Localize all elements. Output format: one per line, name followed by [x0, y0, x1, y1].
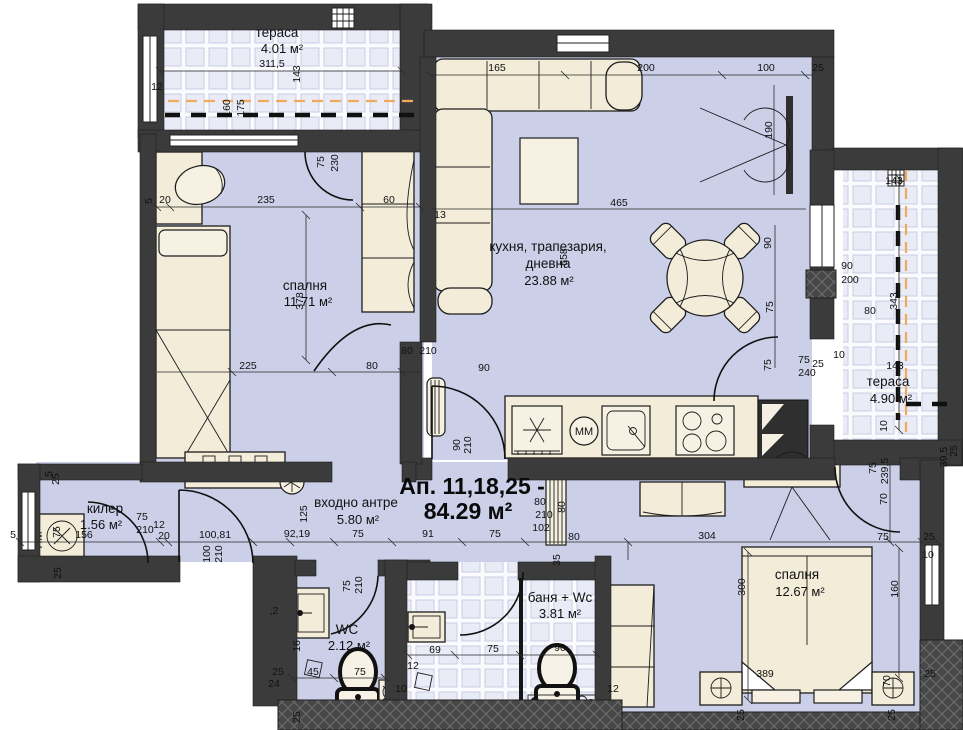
microwave-icon: MM: [570, 417, 598, 445]
dimension-label: 45: [307, 666, 319, 678]
bedroom1-terrace-window: [170, 135, 298, 146]
dimension-label: 210: [213, 545, 225, 563]
dimension-label: 210: [535, 509, 553, 521]
dimension-label: 210: [353, 576, 365, 594]
dimension-label: 25: [886, 709, 898, 721]
kitchen-counter: MM: [505, 396, 808, 460]
dimension-label: 90: [478, 362, 490, 374]
dimension-label: 156: [75, 529, 93, 541]
sink-icon: [602, 406, 650, 455]
dimension-label: 16: [291, 640, 303, 652]
fridge-icon: [758, 400, 808, 460]
dimension-label: 300: [736, 578, 748, 596]
dimension-label: 75: [341, 580, 353, 592]
pillow: [159, 230, 227, 256]
dimension-label: 210: [136, 524, 154, 536]
dimension-label: 92,19: [284, 528, 310, 540]
dimension-label: 200: [637, 62, 655, 74]
dimension-label: 90: [841, 260, 853, 272]
closet-window: [22, 492, 35, 550]
dimension-label: 75: [354, 666, 366, 678]
dimension-label: 143: [885, 175, 903, 187]
dimension-label: 25: [291, 711, 303, 723]
coffee-table: [520, 138, 578, 204]
dimension-label: 239,5: [879, 458, 891, 484]
dimension-label: 100: [201, 545, 213, 563]
dimension-label: 10: [833, 349, 845, 361]
dimension-label: 80: [366, 360, 378, 372]
cooktop-icon: [676, 406, 734, 455]
dimension-label: ,2: [270, 605, 279, 617]
dimension-label: 60: [383, 194, 395, 206]
dimension-label: 12: [151, 81, 163, 93]
dimension-label: 80: [534, 496, 546, 508]
dimension-label: 125: [298, 505, 310, 523]
dimension-label: 10: [878, 420, 890, 432]
dimension-label: 304: [698, 530, 716, 542]
microwave-label: MM: [575, 426, 593, 438]
dimension-label: 75: [51, 526, 63, 538]
dimension-label: 100: [757, 62, 775, 74]
dimension-label: 143: [291, 65, 303, 83]
dimension-label: 20: [158, 530, 170, 542]
dimension-label: 25: [52, 567, 64, 579]
bath-name: баня + Wc: [528, 590, 593, 605]
dimension-label: 389: [756, 668, 774, 680]
dimension-label: 75: [762, 359, 774, 371]
dimension-label: 10: [395, 683, 407, 695]
dimension-label: 70: [881, 675, 893, 687]
freezer-star-icon: [512, 406, 562, 455]
column: [806, 270, 836, 298]
bedroom2-cabinet: [640, 482, 725, 516]
dimension-label: 12: [407, 660, 419, 672]
wc-area: 2.12 м²: [328, 638, 371, 653]
dimension-label: 160: [889, 580, 901, 598]
dimension-label: 25: [812, 358, 824, 370]
living-name-line1: кухня, трапезария,: [489, 239, 606, 254]
dimension-label: 25: [924, 668, 936, 680]
hall-area: 5.80 м²: [337, 512, 380, 527]
dimension-label: 75: [764, 301, 776, 313]
dimension-label: 75: [877, 531, 889, 543]
apartment-title: Ап. 11,18,25 -: [399, 473, 545, 499]
terrace2-area: 4.90 м²: [870, 391, 913, 406]
bath-toilet-icon: [536, 645, 578, 708]
bedroom2-nightstand-left: [700, 672, 742, 705]
dimension-label: 75: [315, 156, 327, 168]
dimension-label: 75: [136, 511, 148, 523]
closet-name: килер: [87, 501, 123, 516]
living-area: 23.88 м²: [524, 273, 574, 288]
dimension-label: 343: [888, 292, 900, 310]
terrace1-name: тераса: [256, 25, 299, 40]
dimension-label: 35: [551, 554, 563, 566]
dimension-label: 235: [257, 194, 275, 206]
dimension-label: 80: [568, 531, 580, 543]
dimension-label: 190: [763, 121, 775, 139]
terrace2-name: тераса: [867, 374, 910, 389]
dimension-label: 90: [762, 237, 774, 249]
dimension-label: 91: [422, 528, 434, 540]
dimension-label: 102: [532, 522, 550, 534]
terrace1-left-window: [143, 36, 157, 122]
dimension-label: 465: [610, 197, 628, 209]
bedroom1-bed: [156, 226, 230, 458]
dimension-label: 80: [864, 305, 876, 317]
dimension-label: 558: [558, 248, 570, 266]
dimension-label: 10: [922, 549, 934, 561]
dimension-label: 200: [841, 274, 859, 286]
bath-area: 3.81 м²: [539, 606, 582, 621]
dimension-label: 25: [948, 445, 960, 457]
dimension-label: 225: [239, 360, 257, 372]
dimension-label: 100,81: [199, 529, 231, 541]
bedroom2-name: спалня: [775, 567, 819, 582]
dimension-label: 5: [10, 529, 16, 541]
dimension-label: 75: [798, 354, 810, 366]
dimension-label: 210: [419, 345, 437, 357]
bedroom2-area: 12.67 м²: [775, 584, 825, 599]
bedroom1-area: 11.71 м²: [284, 294, 333, 309]
dimension-label: 210: [462, 436, 474, 454]
living-top-window: [557, 35, 609, 52]
dimension-label: 12: [607, 683, 619, 695]
dimension-label: 75: [352, 528, 364, 540]
dimension-label: 75: [487, 643, 499, 655]
terrace1-area: 4.01 м²: [261, 41, 304, 56]
dimension-label: 175: [235, 99, 247, 117]
dimension-label: 25: [735, 709, 747, 721]
floor-plan-drawing: MM: [0, 0, 963, 730]
dimension-label: 143: [886, 360, 904, 372]
living-terrace2-window: [810, 205, 834, 267]
dimension-label: 75: [867, 462, 879, 474]
wc-sink-icon: [293, 588, 329, 638]
dimension-label: 80: [401, 345, 413, 357]
dimension-label: 311,5: [259, 58, 285, 70]
dimension-label: 230: [329, 154, 341, 172]
dimension-label: 160: [221, 99, 233, 117]
floor-plan: MM: [0, 0, 963, 730]
dimension-label: 25: [272, 666, 284, 678]
bedroom1-name: спалня: [283, 278, 327, 293]
dimension-label: 75: [489, 528, 501, 540]
vent-grid-icon: [332, 8, 354, 28]
dimension-label: 20: [159, 194, 171, 206]
hall-name: входно антре: [314, 495, 398, 510]
bedroom1-wardrobe: [362, 150, 414, 312]
dimension-label: 70: [878, 493, 890, 505]
dimension-label: 69: [429, 644, 441, 656]
dimension-label: 378: [294, 292, 306, 310]
dimension-label: 24: [268, 678, 280, 690]
bedroom2-nightstand-right: [872, 672, 914, 705]
dimension-label: 165: [488, 62, 506, 74]
dimension-label: 5: [143, 198, 155, 204]
dimension-label: 25: [812, 62, 824, 74]
dimension-label: 90: [554, 642, 566, 654]
dimension-label: 25: [50, 473, 62, 485]
wc-name: WC: [336, 622, 359, 637]
ottoman: [438, 288, 492, 314]
bath-sink-icon: [405, 612, 445, 642]
dimension-label: 80: [556, 501, 568, 513]
dimension-label: 13: [434, 209, 446, 221]
apartment-total-area: 84.29 м²: [424, 498, 513, 524]
dimension-label: 25: [923, 531, 935, 543]
